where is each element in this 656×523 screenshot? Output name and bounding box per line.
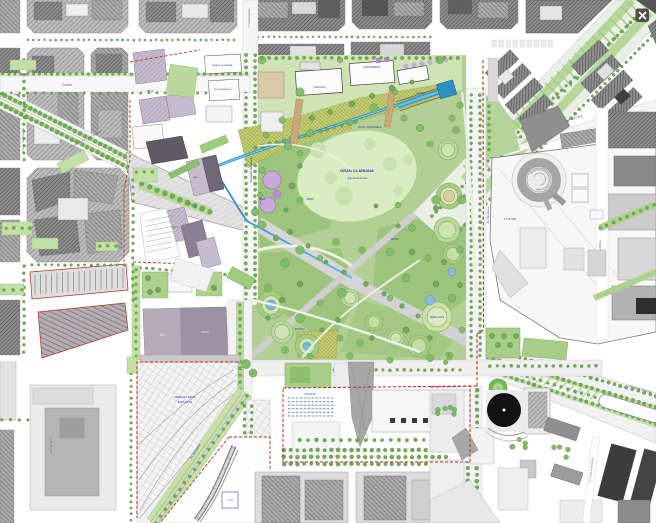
- svg-text:PB+18: PB+18: [201, 330, 209, 334]
- svg-text:CLUB: CLUB: [227, 500, 233, 502]
- svg-text:15-18 HAB: 15-18 HAB: [504, 218, 516, 221]
- svg-text:PB+7: PB+7: [160, 333, 167, 337]
- svg-text:CASA DE LA PREMSA: CASA DE LA PREMSA: [212, 64, 233, 67]
- svg-text:CASAL: CASAL: [416, 91, 425, 95]
- svg-text:JARDI: JARDI: [306, 197, 314, 201]
- svg-text:GRAN CLARIANA: GRAN CLARIANA: [340, 168, 374, 173]
- svg-text:BOSC INUNDABLE: BOSC INUNDABLE: [359, 125, 382, 129]
- svg-text:C. Independencia: C. Independencia: [248, 8, 251, 27]
- svg-text:PB+8: PB+8: [147, 90, 154, 93]
- svg-text:Avinguda Meridiana: Avinguda Meridiana: [249, 157, 253, 182]
- svg-text:Carrer: Carrer: [62, 83, 73, 87]
- svg-text:AREA JOCS: AREA JOCS: [430, 315, 445, 319]
- svg-text:Carrer de P.: Carrer de P.: [49, 437, 53, 453]
- svg-text:PB+5: PB+5: [193, 177, 199, 179]
- svg-text:EQUIPAMENT: EQUIPAMENT: [364, 65, 381, 69]
- svg-text:PB+4: PB+4: [172, 227, 178, 229]
- svg-text:ENCANTS: ENCANTS: [178, 400, 192, 404]
- svg-text:ESTANY: ESTANY: [295, 327, 305, 331]
- svg-text:ESCOLA: ESCOLA: [314, 85, 325, 89]
- svg-text:BOSC: BOSC: [391, 237, 398, 241]
- svg-text:MERCAT DELS: MERCAT DELS: [174, 395, 195, 399]
- svg-text:PB+6: PB+6: [259, 197, 266, 201]
- svg-text:CROQUIS: CROQUIS: [304, 393, 316, 396]
- svg-text:Av. Meridiana: Av. Meridiana: [486, 206, 490, 223]
- svg-text:gran area verda: gran area verda: [347, 176, 367, 180]
- svg-text:ESCOLA BRESSOL: ESCOLA BRESSOL: [214, 88, 233, 91]
